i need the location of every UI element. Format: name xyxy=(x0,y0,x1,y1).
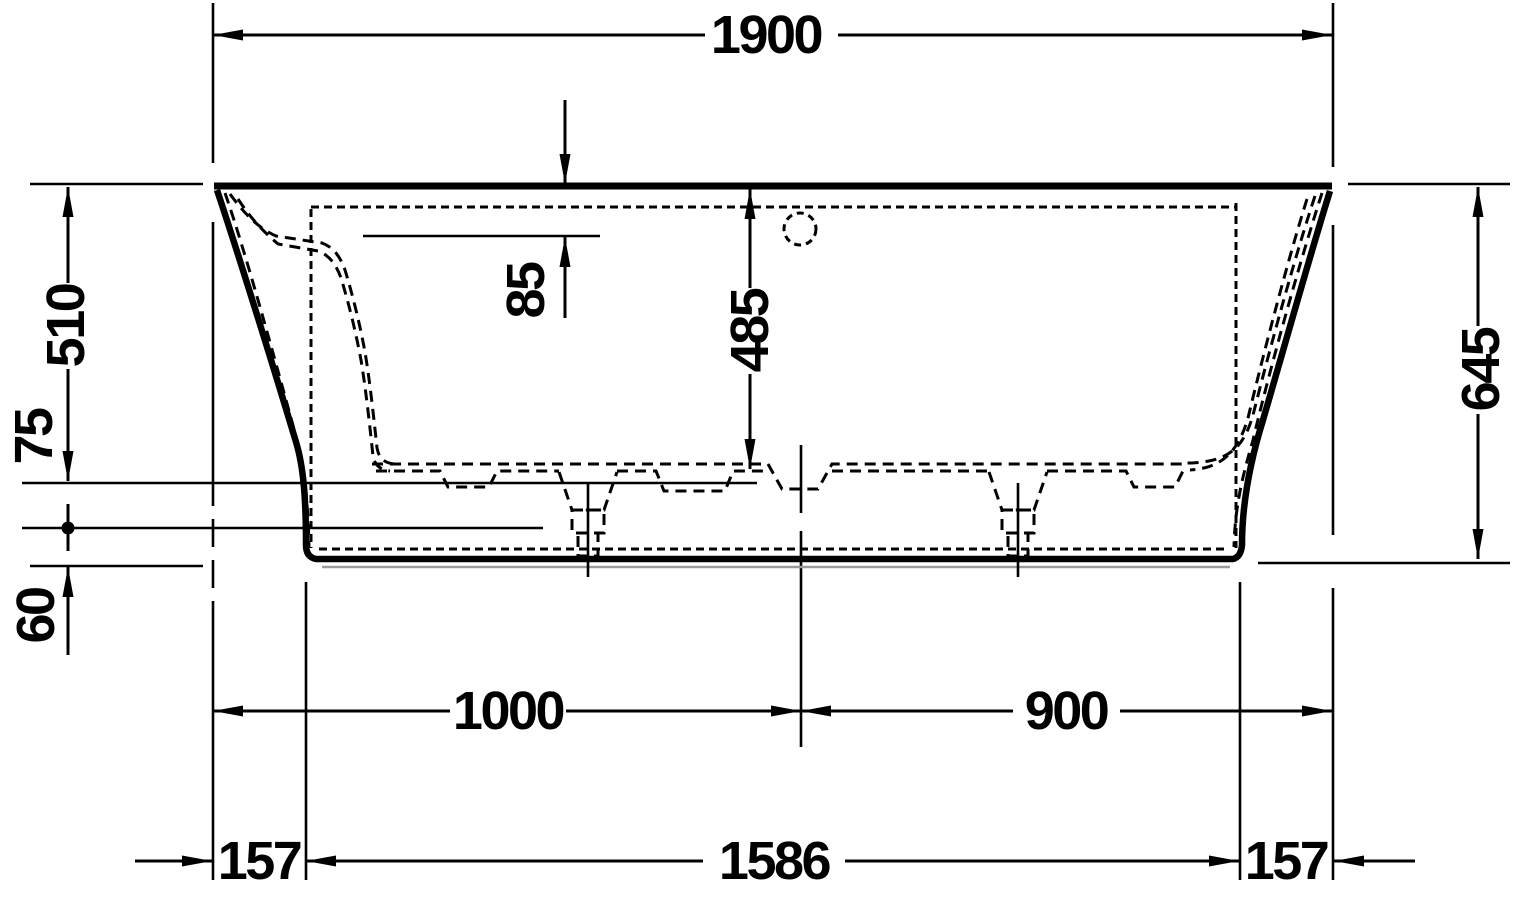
hidden-lines xyxy=(225,193,1322,577)
dim-label-157-left: 157 xyxy=(218,831,301,891)
dim-label-645: 645 xyxy=(1451,327,1511,411)
floor-bottom-dashed xyxy=(376,471,1183,491)
dim-label-1586: 1586 xyxy=(719,831,831,891)
dimension-labels: 1900 85 485 510 75 60 645 1000 900 157 1… xyxy=(4,5,1511,891)
technical-drawing-canvas: 1900 85 485 510 75 60 645 1000 900 157 1… xyxy=(0,0,1517,901)
dim-dot-75-60-junction xyxy=(62,522,75,535)
dim-label-60: 60 xyxy=(6,588,66,644)
dimension-lines xyxy=(62,35,1479,861)
tub-outline xyxy=(214,186,1332,567)
dim-label-157-right: 157 xyxy=(1245,831,1328,891)
dim-label-1900: 1900 xyxy=(711,5,822,65)
dim-label-1000: 1000 xyxy=(453,681,564,741)
dim-label-85: 85 xyxy=(496,262,556,319)
dim-label-75: 75 xyxy=(4,408,64,465)
dim-label-900: 900 xyxy=(1025,681,1108,741)
dim-label-510: 510 xyxy=(36,284,96,367)
bathtub-dimension-drawing: 1900 85 485 510 75 60 645 1000 900 157 1… xyxy=(0,0,1517,901)
extension-lines xyxy=(22,3,1510,880)
overflow-hole-dashed-circle xyxy=(784,213,816,245)
tub-shell-outline xyxy=(217,190,1330,559)
dim-label-485: 485 xyxy=(720,288,780,372)
